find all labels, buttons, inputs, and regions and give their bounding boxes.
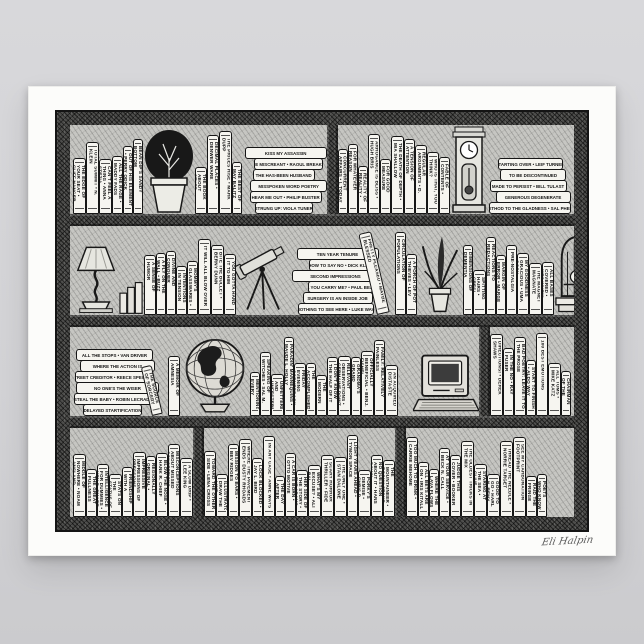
book-spine: CAN'T FEEL A THING • Anna Stezia <box>99 159 112 214</box>
book-title: A MEMOIR OF AMNESIA <box>169 357 179 409</box>
book-spine: THE GREAT FULLNESS OF GRATEFULNESS <box>86 469 97 517</box>
book-spine: TOO MUCH TO DRINK • Carrie Mehome <box>406 437 418 517</box>
book-spine: FAMILY: RELATIVELY PAINLESS <box>374 340 385 416</box>
book-spine: RAID THE FRINGE <box>526 476 537 517</box>
book-spine: LOCK BLOCKED • Jay L. Bird <box>252 458 263 517</box>
book-spine: ILLUSTRATORS DRAW THE LINE SOMEWHERE • P… <box>216 474 228 517</box>
book-title: START TO FINISH • Aldo Way <box>527 361 535 409</box>
book-title: REGIONALLY ORIGINAL • Reginald O'Regiona… <box>147 457 155 510</box>
book-title: STARING AT THE SEA • Clive Atwater <box>475 465 486 510</box>
book-spine: SEE MY CARBONATION FOOTPRINT <box>513 437 526 517</box>
book-title: THE ONLY ONE • Stan Dalone <box>336 458 346 510</box>
book-spine: MY GOODNESS GRACIOUS • Uma Gosh <box>517 253 529 315</box>
book-title: 100 BEST EMOTIONS <box>540 334 545 409</box>
book-spine: A PORCH OF POT THIEVES • Lev <box>406 254 417 315</box>
book-spine: AN ACQUIRED DISTASTE <box>385 365 398 416</box>
book-title: STRUNG UP: VIOLA TUNER <box>255 206 313 211</box>
book-title: THE BOOK ABOUT STUFF • Alma Nack <box>196 168 206 207</box>
book-spine: UNFETTERED AND UNFESTERED <box>271 374 284 416</box>
computer-icon <box>413 352 479 416</box>
book-title: THE MOUNTAINEER • Rocky Stone <box>384 461 394 510</box>
book-spine: SPEAKING OF WITCHES • Sal M. Trials <box>260 352 271 416</box>
grandfather-clock-icon <box>452 126 486 214</box>
book-spine: THE DEATH OF DEPTH • Mia Shallow <box>391 136 404 214</box>
book-spine: YOU GOTTA HAND IT TO HIM <box>224 254 236 315</box>
book-spine: REACTIONS TO REDACTIONS <box>486 237 496 315</box>
book-spine: IMPRESSIVE IMPRESSIONS OF PRESSIONS <box>133 452 146 517</box>
book-spine: OUT OF HIS ELEMENT • Perry Odick <box>123 146 133 214</box>
book-spine: A TENSION OF ATTENTION <box>404 139 415 214</box>
book-spine: POETS WHO KNOW IT <box>537 474 547 517</box>
book-spine: RELEVANT OBSERVATIONS • Germaine Point <box>338 356 351 416</box>
shelf-divider <box>479 327 490 416</box>
book-spine: MENTIONING EVERY MENTION <box>250 372 260 416</box>
book-spine: A SENSE OF HUMOR <box>144 255 156 315</box>
potted-plant-icon <box>143 128 195 214</box>
book-title: FAMILY: RELATIVELY PAINLESS <box>375 341 384 409</box>
book-title: FOR WHATEVER REASON <box>349 145 357 207</box>
book-spine: THE PRICES RISE • Mark Dupp <box>219 131 232 214</box>
stacked-book: DELAYED STARTIFICATION <box>83 404 142 416</box>
book-spine: WHERE THE PAVEMENT ENDS • Dusty Rhoads <box>239 439 252 517</box>
book-spine: WHO IS THAT, YOU THINK? <box>427 152 439 214</box>
book-spine: ALL BETS ARE ON • Iris Kitall <box>418 462 429 517</box>
mini-books-icon <box>119 279 144 315</box>
book-title: GENEROUS DEGENERATE <box>505 195 562 200</box>
book-title: HOW TO SAY NO • Dick Klein <box>309 263 373 268</box>
book-spine: GOOD TO GO • Harl N. Remy <box>487 474 500 517</box>
book-spine: OFFICIALLY BENEFICIAL • Benj. Fishel <box>361 351 374 416</box>
book-spine: BLOW THE NOSE • Hank R. Chief <box>156 453 168 517</box>
book-title: SEE MY CARBONATION FOOTPRINT <box>515 438 525 510</box>
book-title: THE BEST OF MAY BALITZ <box>233 163 241 207</box>
horizontal-book-stack: KISS MY ASSASSINTHE MISCREANT • Raoul Br… <box>245 148 327 214</box>
shelf-board <box>70 416 574 428</box>
book-title: ALL THE RAGE • Maddy Fads <box>113 157 122 207</box>
book-title: RELEVANT OBSERVATIONS • Germaine Point <box>339 357 350 409</box>
book-title: BEAN DIP'S SANDY BOTTOM <box>134 140 142 207</box>
book-spine: MISCONCEPTIONS ABOUT MISSED CONCEPTIONS <box>168 444 180 517</box>
book-title: THE DEATH OF DEPTH • Mia Shallow <box>392 137 402 207</box>
book-title: AN ACQUIRED DISTASTE <box>387 366 397 409</box>
book-spine: CIRCULATION OF POPULATIONS <box>395 232 406 315</box>
book-title: HER SIDE OF THE STORY • Eve Adams <box>297 471 307 510</box>
book-spine: THE DAY AFTER YESTERDAY • Todd A. <box>275 476 285 517</box>
book-spine: IN ANY CASE • Anne Ways <box>263 436 275 517</box>
book-spine: A SLOW DRIP • Lee King <box>180 458 193 517</box>
book-title: FRIDAY EVENING CORNERBACK <box>295 364 305 409</box>
book-title: STATS ON THE STATUS OF THE STATE <box>110 475 121 510</box>
book-title: SPEAKING OF WITCHES • Sal M. Trials <box>261 353 270 409</box>
book-spine: WHAT'S MY EXCUSE? • Ali Bai <box>308 465 321 517</box>
book-spine: CHAIRMAN OF THE BEARD <box>561 371 571 416</box>
bookcase-illustration: THE EDGE OF YOUR SEAT • Cliff HangerTOTA… <box>55 110 589 532</box>
book-spine: PARADIN' MANNEQUINS • Maude L. Holly <box>284 337 294 416</box>
book-title: YOU GOTTA HAND IT TO HIM <box>225 255 235 308</box>
book-title: MADE TO PERSIST • Bill Tulast <box>492 184 564 189</box>
book-title: MOMMY'S GLASSWARES • Neva Way <box>188 262 197 308</box>
book-title: ALL BETS ARE ON • Iris Kitall <box>419 463 428 510</box>
book-spine: HER SIDE OF THE STORY • Eve Adams <box>296 470 308 517</box>
book-title: A TENSION OF ATTENTION <box>405 140 414 207</box>
book-title: REALITY OF REALITY • Mort Gage <box>359 167 367 207</box>
book-title: CAN'T FEEL A THING • Anna Stezia <box>100 160 111 207</box>
book-spine: PORKY'S DEMISE • Chris P. Bacon <box>358 470 371 517</box>
book-title: DECIMAL PLACES • Denwer Ware <box>208 136 218 207</box>
book-title: LIGHT YEARS AHEAD • Tymon Space <box>348 436 357 510</box>
book-spine: IT WILL ALL BLOW OVER <box>198 239 211 315</box>
globe-icon <box>180 332 250 416</box>
telescope-icon <box>236 231 294 315</box>
book-spine: I DON'T KNOW THE HALF OF IT <box>327 357 338 416</box>
book-title: IN ANY CASE • Anne Ways <box>267 437 272 510</box>
shelf-board <box>70 315 574 327</box>
book-title: A PORCH OF POT THIEVES • Lev <box>407 255 416 308</box>
book-spine: NO QUESTION ABOUT IT • Hans Down <box>371 455 383 517</box>
book-title: FABLE OF CONTENTS • Faye Altais <box>440 158 449 207</box>
book-spine: TOTAL SUMMIT • N. Klein <box>86 142 99 214</box>
book-spine: THE BOOK ABOUT STUFF • Alma Nack <box>195 167 207 214</box>
book-title: A CAR IS BORN • Otto Motive <box>286 454 295 510</box>
book-spine: THREAD THE NEEDLE • Norrie Target <box>500 441 513 517</box>
book-title: TEN YEAR TENURE <box>317 252 358 257</box>
book-spine: THE ACCOMPLISHED ACCOMPLICE <box>306 363 316 416</box>
book-title: ALL TOMS • Mike Katz <box>550 364 560 409</box>
book-title: STREET CREDITOR • Reece Specter <box>75 375 151 380</box>
book-spine: BAD POETRY: LEAVE IT TO THE PROSE <box>514 337 526 416</box>
shelf-board <box>70 214 574 226</box>
book-title: MISSPOKEN WORD POETRY <box>258 184 319 189</box>
book-title: MISCONCEPTIONS ABOUT MISSED CONCEPTIONS <box>169 445 179 510</box>
book-title: TOTAL SUMMIT • N. Klein <box>88 143 98 207</box>
book-spine: A MEMOIR OF AMNESIA <box>168 356 180 416</box>
book-spine: A CAR IS BORN • Otto Motive <box>285 453 296 517</box>
book-spine: ARROGANCE IS BLISS • Hugh Bris <box>368 134 380 214</box>
book-title: NO QUESTION ABOUT IT • Hans Down <box>372 456 382 510</box>
book-spine: JUDGE THIS COVER • Booker Looke <box>450 455 461 517</box>
book-spine: DECIMAL PLACES • Denwer Ware <box>207 135 219 214</box>
book-title: FOR GOOD MEASURE <box>381 160 390 207</box>
book-title: WHAT'S MY EXCUSE? • Ali Bai <box>309 466 320 510</box>
book-title: TOO MUCH TO DRINK • Carrie Mehome <box>407 438 417 510</box>
book-title: ARROGANCE IS BLISS • Hugh Bris <box>369 135 379 207</box>
book-spine: WHERE THE LAVA FLOWS • Val Kano <box>429 469 439 517</box>
book-spine: FRIENDSHIP WITH A FRENCH CHIMP • Fred Ch… <box>122 467 133 517</box>
book-spine: CONCURRENT AFFAIRS • I. Today <box>338 149 348 214</box>
book-title: NOTHING TO SEE HERE • Luke Way <box>298 307 374 312</box>
book-spine: THE BEST OF MAY BALITZ <box>232 162 242 214</box>
book-spine: DIVINE AND CONQUER <box>166 251 176 315</box>
book-title: WHERE THE ACTION IS <box>93 364 143 369</box>
book-spine: FOR WHATEVER REASON <box>348 144 358 214</box>
book-title: INTENTIONS IN TENSION <box>177 267 186 308</box>
book-title: BLOW THE NOSE • Hank R. Chief <box>157 454 167 510</box>
wall-background: THE EDGE OF YOUR SEAT • Cliff HangerTOTA… <box>0 0 644 644</box>
book-spine: MIDDLE OF NOWHERE • Noam Ansland <box>73 454 86 517</box>
book-title: BITE THE BULLET • Berny Dunn <box>213 246 223 308</box>
book-title: FRIENDSHIP WITH A FRENCH CHIMP • Fred Ch… <box>123 468 132 510</box>
book-spine: SPITTING HAIRS • Cresi Green <box>473 270 486 315</box>
book-title: MENTIONING EVERY MENTION <box>251 373 259 409</box>
book-title: CONCURRENT AFFAIRS • I. Today <box>339 150 347 207</box>
book-spine: FABLE OF CONTENTS • Faye Altais <box>439 157 450 214</box>
book-title: SCARY HORROR THRILLER • Fide <box>323 456 333 510</box>
book-title: IN THE NO • Ray Fuser <box>504 349 513 409</box>
shelf-row-3: ALL THE STOPS • Van DriverWHERE THE ACTI… <box>70 327 574 416</box>
book-spine: STATS ON THE STATUS OF THE STATE <box>109 474 122 517</box>
book-title: DELAYED STARTIFICATION <box>84 408 142 413</box>
book-title: PORKY'S DEMISE • Chris P. Bacon <box>359 471 370 510</box>
book-title: GRANDMA'S GRAND GRAMMAR <box>352 358 360 409</box>
book-title: THREAD THE NEEDLE • Norrie Target <box>502 442 512 510</box>
shelf-divider <box>395 428 406 517</box>
book-spine: FOR GOOD MEASURE <box>380 159 391 214</box>
book-spine: LIGHT YEARS AHEAD • Tymon Space <box>347 435 358 517</box>
book-title: INTELLIGENCE FOR DUMMIES • Ken B. Smart <box>98 465 108 510</box>
shelf-row-2: A SENSE OF HUMORA FLY ON THE WALL • Buzz… <box>70 226 574 315</box>
book-spine: ALL TOMS • Mike Katz <box>548 363 561 416</box>
book-spine: THE OLDEST TRICKS IN THE MIX <box>461 441 474 517</box>
artist-signature: Eli Halpin <box>541 535 595 549</box>
book-title: MARGIN OF ERROR • Marge Inovera <box>497 256 505 308</box>
stacked-book: NOTHING TO SEE HERE • Luke Way <box>298 303 374 315</box>
book-title: BAD POETRY: LEAVE IT TO THE PROSE <box>515 338 525 409</box>
book-title: TO BE DISCONTINUED <box>509 173 557 178</box>
book-spine: REGULAR ARGUMENTS • D. Bails <box>415 145 427 214</box>
book-title: REGULAR ARGUMENTS • D. Bails <box>416 146 426 207</box>
book-title: STEAL THE BABY • Robin LeCradle <box>74 397 155 402</box>
book-spine: PRE-NOSTALGIA <box>506 245 517 315</box>
book-title: DIRECTIONS! • Derek Shaws <box>492 335 502 409</box>
book-title: TOWARD THE OTHER SIDE • Lena Cross <box>205 452 215 510</box>
shelf-divider <box>193 428 204 517</box>
book-title: CIRCULATION OF POPULATIONS <box>396 233 405 308</box>
book-title: WILL YOU CARRY ME? • Paul Bearer <box>308 285 373 290</box>
book-spine: ALL BASES COVERED • Wes Whew <box>542 262 554 315</box>
shelf-row-1: THE EDGE OF YOUR SEAT • Cliff HangerTOTA… <box>70 125 574 214</box>
book-title: MIDDLE OF NOWHERE • Noam Ansland <box>74 455 85 510</box>
book-title: METHOD TO THE GLADNESS • Sal Phelp <box>489 206 571 211</box>
shelf-column: THE EDGE OF YOUR SEAT • Cliff HangerTOTA… <box>70 125 574 517</box>
book-title: HEAR ME OUT • Philip Buster <box>252 195 320 200</box>
book-spine: MARGIN OF ERROR • Marge Inovera <box>496 255 506 315</box>
book-title: THE ACCOMPLISHED ACCOMPLICE <box>307 364 315 409</box>
horizontal-book-stack: STARTING OVER • Leif TurnerTO BE DISCONT… <box>489 159 571 214</box>
book-title: DIMENSIONS OF DEMENTIA <box>464 246 472 308</box>
book-title: THE HAS-BEEN HUSBAND <box>256 173 312 178</box>
feather-plant-icon <box>417 233 463 315</box>
book-title: PRE-NOSTALGIA <box>509 246 514 308</box>
book-spine: THE MAGNET MAGNATE <box>529 263 542 315</box>
birdcage-icon <box>554 227 574 315</box>
book-spine: STARING AT THE SEA • Clive Atwater <box>474 464 487 517</box>
book-title: ALL THE STOPS • Van Driver <box>82 353 147 358</box>
book-spine: GRANDMA'S GRAND GRAMMAR <box>351 357 361 416</box>
book-title: OFFICIALLY BENEFICIAL • Benj. Fishel <box>362 352 373 409</box>
book-spine: DIMENSIONS OF DEMENTIA <box>463 245 473 315</box>
book-spine: REALITY OF REALITY • Mort Gage <box>358 166 368 214</box>
book-title: THE MAGNET MAGNATE <box>531 264 541 308</box>
book-title: THE DAY AFTER YESTERDAY • Todd A. <box>276 477 284 510</box>
book-spine: REGIONALLY ORIGINAL • Reginald O'Regiona… <box>146 456 156 517</box>
book-title: MY GOODNESS GRACIOUS • Uma Gosh <box>518 254 528 308</box>
book-spine: IN THE NO • Ray Fuser <box>503 348 514 416</box>
book-title: I DON'T KNOW THE HALF OF IT <box>328 358 337 409</box>
book-spine: SCARY HORROR THRILLER • Fide <box>321 455 334 517</box>
book-title: OUT OF HIS ELEMENT • Perry Odick <box>124 147 132 207</box>
book-title: IMPRESSIVE IMPRESSIONS OF PRESSIONS <box>134 453 145 510</box>
book-title: THE MISCREANT • Raoul Breaker <box>254 162 323 167</box>
book-title: ALL BASES COVERED • Wes Whew <box>543 263 553 308</box>
book-title: THE PRICES RISE • Mark Dupp <box>221 132 231 207</box>
book-spine: AT YOUR SERVICE • Beck N. Call <box>439 448 450 517</box>
book-title: A SLOW DRIP • Lee King <box>182 459 192 510</box>
book-title: WHERE THE PAVEMENT ENDS • Dusty Rhoads <box>241 440 251 510</box>
book-spine: THE EDGE OF YOUR SEAT • Cliff Hanger <box>73 158 86 214</box>
book-spine: MOMMY'S GLASSWARES • Neva Way <box>187 261 198 315</box>
stacked-book: STRUNG UP: VIOLA TUNER <box>255 202 313 214</box>
book-title: THE GREAT FULLNESS OF GRATEFULNESS <box>87 470 96 510</box>
book-title: CHAIRMAN OF THE BEARD <box>562 372 570 409</box>
book-title: THE EDGE OF YOUR SEAT • Cliff Hanger <box>74 159 85 207</box>
book-title: NO ONE'S THE WISER <box>94 386 141 391</box>
poster: THE EDGE OF YOUR SEAT • Cliff HangerTOTA… <box>28 86 616 556</box>
book-title: LOCK BLOCKED • Jay L. Bird <box>253 459 262 510</box>
book-spine: BITE THE BULLET • Berny Dunn <box>211 245 224 315</box>
book-spine: DIRECTIONS! • Derek Shaws <box>490 334 503 416</box>
book-title: DIVINE AND CONQUER <box>167 252 175 308</box>
book-title: SPITTING HAIRS • Cresi Green <box>474 271 485 308</box>
book-spine: A FLY ON THE WALL • Buzz Word <box>156 253 166 315</box>
book-title: RAID THE FRINGE <box>527 477 536 510</box>
book-title: POETS WHO KNOW IT <box>538 475 546 510</box>
book-title: STARTING OVER • Leif Turner <box>498 162 563 167</box>
book-title: SURGERY IS AN INSIDE JOB <box>307 296 367 301</box>
book-spine: START TO FINISH • Aldo Way <box>526 360 536 416</box>
book-title: AT YOUR SERVICE • Beck N. Call <box>440 449 449 510</box>
stacked-book: METHOD TO THE GLADNESS • Sal Phelp <box>489 202 571 214</box>
book-title: UNFETTERED AND UNFESTERED <box>272 375 283 409</box>
book-title: THE OLDEST TRICKS IN THE MIX <box>463 442 473 510</box>
book-spine: 100 BEST EMOTIONS <box>536 333 548 416</box>
shelf-row-4: MIDDLE OF NOWHERE • Noam AnslandTHE GREA… <box>70 428 574 517</box>
table-lamp-icon <box>73 243 119 315</box>
book-spine: THE MOUNTAINEER • Rocky Stone <box>383 460 395 517</box>
book-title: ILLUSTRATORS DRAW THE LINE SOMEWHERE • P… <box>217 475 227 510</box>
book-title: WHO IS THAT, YOU THINK? <box>428 153 438 207</box>
book-spine: BEAN DIP'S SANDY BOTTOM <box>133 139 143 214</box>
book-title: WHERE THE LAVA FLOWS • Val Kano <box>430 470 438 510</box>
book-spine: FRIDAY EVENING CORNERBACK <box>294 363 306 416</box>
book-spine: THE ONLY ONE • Stan Dalone <box>334 457 347 517</box>
book-spine: INTELLIGENCE FOR DUMMIES • Ken B. Smart <box>97 464 109 517</box>
book-title: PARADIN' MANNEQUINS • Maude L. Holly <box>285 338 293 409</box>
book-title: KISS MY ASSASSIN <box>265 151 306 156</box>
book-title: GOOD TO GO • Harl N. Remy <box>488 475 499 510</box>
book-spine: ALL THE RAGE • Maddy Fads <box>112 156 123 214</box>
book-spine: MISSION TO BARS • Bev Ridges <box>228 444 239 517</box>
book-spine: TOWARD THE OTHER SIDE • Lena Cross <box>204 451 216 517</box>
book-title: JUDGE THIS COVER • Booker Looke <box>451 456 460 510</box>
book-title: THE MODERN CONSERVATIVE • Eileen Wright <box>317 376 326 409</box>
book-title: A SENSE OF HUMOR <box>145 256 155 308</box>
shelf-divider <box>327 125 338 214</box>
book-title: A FLY ON THE WALL • Buzz Word <box>157 254 165 308</box>
book-title: IT WILL ALL BLOW OVER <box>202 240 207 308</box>
book-spine: INTENTIONS IN TENSION <box>176 266 187 315</box>
book-title: REACTIONS TO REDACTIONS <box>487 238 495 308</box>
book-title: SECOND IMPRESSIONS <box>310 274 361 279</box>
book-title: MISSION TO BARS • Bev Ridges <box>229 445 238 510</box>
book-spine: THE MODERN CONSERVATIVE • Eileen Wright <box>316 375 327 416</box>
